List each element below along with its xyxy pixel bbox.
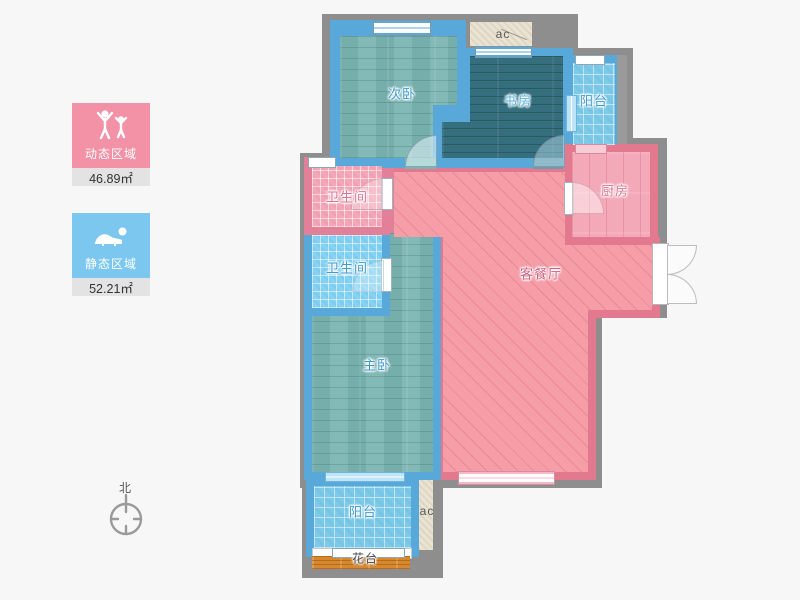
legend-static-area-value: 52.21㎡ (72, 278, 150, 296)
room-label-secondary-bedroom: 次卧 (388, 84, 416, 103)
entry-door-arc-lower (667, 274, 697, 304)
room-label-master-bedroom: 主卧 (363, 355, 391, 374)
room-label-bathroom-lower: 卫生间 (326, 258, 368, 277)
room-label-bathroom-upper: 卫生间 (326, 187, 368, 206)
window-study (475, 46, 532, 58)
room-label-living-dining: 客餐厅 (520, 264, 562, 283)
legend-dynamic-label: 动态区域 (85, 145, 137, 162)
window-secondary-bedroom (373, 20, 431, 36)
window-bathroom-upper (308, 157, 336, 168)
legend-static-area-card[interactable]: 静态区域 (72, 213, 150, 278)
entry-door-arc-upper (667, 245, 697, 275)
legend-static-label: 静态区域 (85, 255, 137, 272)
room-label-balcony-bottom: 阳台 (349, 502, 377, 521)
label-ac-top: ac (496, 27, 511, 41)
window-master-bedroom (325, 472, 405, 482)
room-label-study: 书房 (504, 91, 532, 110)
legend-dynamic-area-value: 46.89㎡ (72, 168, 150, 186)
label-ac-bottom: ac (420, 504, 435, 518)
window-study-balcony (566, 95, 577, 132)
room-label-kitchen: 厨房 (601, 181, 629, 200)
compass-icon (106, 493, 146, 544)
room-label-balcony-top: 阳台 (580, 91, 608, 110)
people-cheering-icon (92, 110, 130, 147)
window-balcony-top (575, 55, 605, 65)
window-kitchen (575, 144, 607, 154)
label-flower-bed: 花台 (352, 550, 378, 567)
balcony-top-outer-wall (617, 55, 627, 153)
window-living-dining (458, 471, 555, 485)
person-resting-icon (91, 224, 131, 255)
legend-dynamic-area-card[interactable]: 动态区域 (72, 103, 150, 168)
